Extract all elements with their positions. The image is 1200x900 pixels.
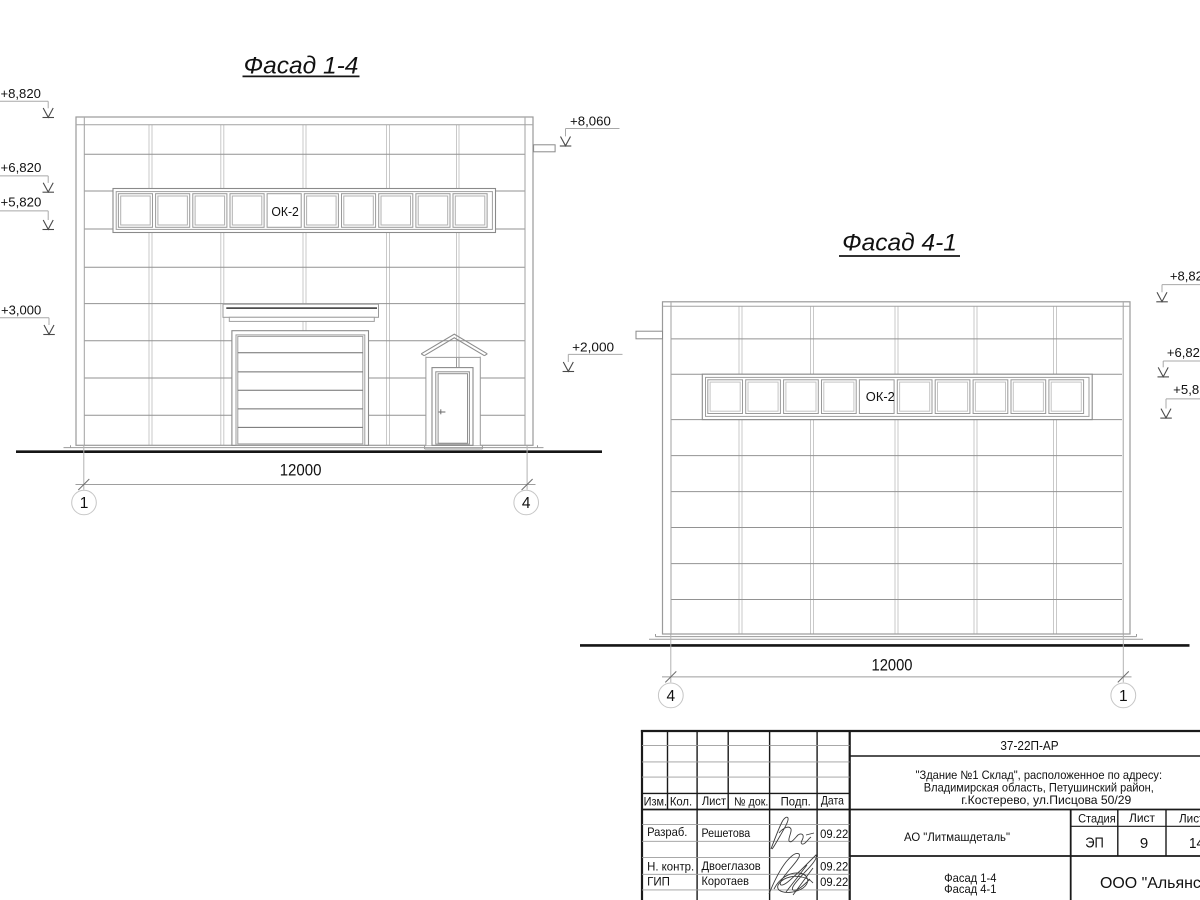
svg-text:Коротаев: Коротаев xyxy=(702,874,750,888)
svg-text:Н. контр.: Н. контр. xyxy=(647,859,694,873)
svg-text:Дата: Дата xyxy=(821,793,844,807)
svg-text:09.22: 09.22 xyxy=(820,827,848,841)
svg-text:Листов: Листов xyxy=(1179,811,1200,825)
svg-text:+8,060: +8,060 xyxy=(570,114,611,129)
svg-text:ЭП: ЭП xyxy=(1085,835,1104,852)
svg-text:+3,000: +3,000 xyxy=(1,302,41,317)
svg-text:1: 1 xyxy=(80,495,89,512)
svg-text:1: 1 xyxy=(1119,688,1128,705)
svg-text:Изм.: Изм. xyxy=(644,795,667,809)
svg-text:09.22: 09.22 xyxy=(820,859,848,873)
svg-text:Кол.: Кол. xyxy=(670,795,692,809)
svg-text:+8,82: +8,82 xyxy=(1170,269,1200,284)
svg-text:Двоеглазов: Двоеглазов xyxy=(702,859,761,873)
svg-text:АО "Литмашдеталь": АО "Литмашдеталь" xyxy=(904,830,1010,844)
svg-text:Решетова: Решетова xyxy=(702,826,751,840)
svg-text:37-22П-АР: 37-22П-АР xyxy=(1000,738,1058,753)
svg-text:Лист: Лист xyxy=(702,794,727,808)
svg-text:ОК-2: ОК-2 xyxy=(271,204,299,219)
svg-text:4: 4 xyxy=(666,688,675,705)
svg-text:+5,8: +5,8 xyxy=(1173,382,1199,397)
svg-text:4: 4 xyxy=(522,495,531,512)
svg-text:14: 14 xyxy=(1189,835,1200,852)
svg-text:12000: 12000 xyxy=(872,656,913,674)
svg-text:Лист: Лист xyxy=(1129,811,1155,825)
svg-text:ОК-2: ОК-2 xyxy=(866,389,895,404)
svg-text:ГИП: ГИП xyxy=(647,874,670,888)
svg-text:Подп.: Подп. xyxy=(781,795,811,809)
svg-text:г.Костерево, ул.Писцова 50/29: г.Костерево, ул.Писцова 50/29 xyxy=(961,793,1131,807)
svg-text:9: 9 xyxy=(1140,835,1148,852)
svg-text:+6,820: +6,820 xyxy=(1,160,42,175)
svg-text:+2,000: +2,000 xyxy=(572,340,614,355)
svg-text:+5,820: +5,820 xyxy=(1,195,42,210)
svg-text:Фасад 1-4: Фасад 1-4 xyxy=(244,53,359,80)
svg-text:№ док.: № док. xyxy=(734,795,768,809)
svg-text:09.22: 09.22 xyxy=(820,875,848,889)
svg-text:12000: 12000 xyxy=(280,461,322,479)
svg-text:+8,820: +8,820 xyxy=(1,86,41,101)
svg-text:+6,82: +6,82 xyxy=(1167,345,1200,360)
svg-text:Фасад 4-1: Фасад 4-1 xyxy=(842,230,957,257)
svg-text:Стадия: Стадия xyxy=(1078,811,1116,825)
svg-text:ООО "Альянс": ООО "Альянс" xyxy=(1100,875,1200,892)
svg-text:Фасад 4-1: Фасад 4-1 xyxy=(944,882,997,896)
svg-text:Разраб.: Разраб. xyxy=(647,825,687,839)
